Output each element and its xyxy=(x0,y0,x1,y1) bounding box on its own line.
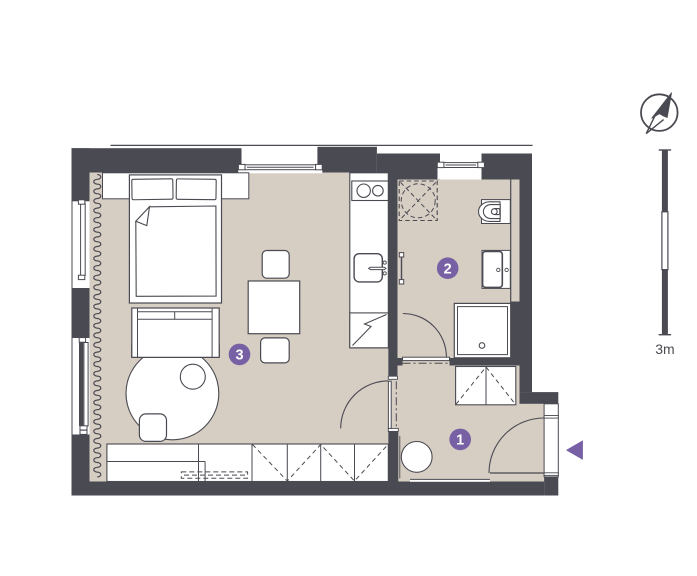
svg-text:3m: 3m xyxy=(655,341,674,357)
svg-text:3: 3 xyxy=(235,348,243,364)
svg-text:2: 2 xyxy=(444,261,452,277)
svg-text:1: 1 xyxy=(456,433,464,449)
